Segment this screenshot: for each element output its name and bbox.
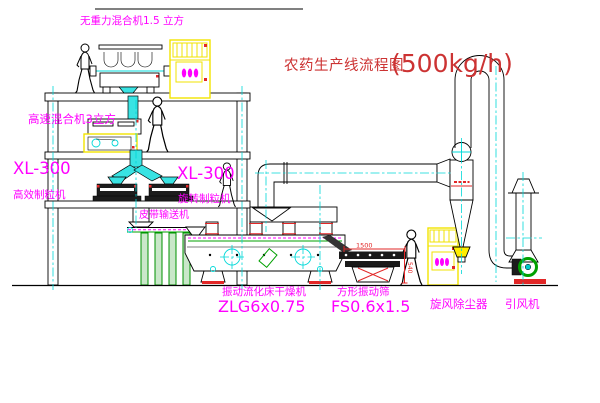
conveyor-support-legs (141, 233, 190, 285)
exhaust-stack (508, 179, 539, 262)
dryer-exhaust-duct (258, 159, 450, 207)
dryer-ports (205, 222, 333, 235)
title-capacity: (500kg/h) (391, 49, 513, 78)
label-granulator-left-name: 高效制粒机 (13, 188, 66, 201)
zero-gravity-mixer (90, 45, 170, 93)
label-sieve-model: FS0.6x1.5 (331, 297, 410, 316)
vibrating-sieve: 1500 540 (339, 242, 413, 284)
drawing-title: 农药生产线流程图 (500kg/h) (284, 49, 513, 78)
label-zero-gravity-mixer: 无重力混合机1.5 立方 (80, 14, 184, 27)
title-text: 农药生产线流程图 (284, 57, 404, 74)
label-fan: 引风机 (505, 297, 540, 311)
label-high-speed-mixer: 高速混合机3立方 (28, 112, 116, 126)
label-cyclone: 旋风除尘器 (430, 297, 488, 311)
dim-540: 540 (406, 262, 413, 274)
cad-drawing-canvas: 1500 540 (0, 0, 600, 403)
fluid-bed-dryer (185, 207, 352, 284)
control-cabinet-lower (428, 228, 458, 285)
label-belt-conveyor: 皮带输送机 (139, 208, 189, 221)
label-granulator-right-model: XL-300 (177, 164, 235, 183)
label-granulator-left-model: XL-300 (13, 159, 71, 178)
granulator-left (93, 177, 141, 201)
label-granulator-right-name: 旋转制粒机 (178, 192, 231, 205)
worker-figure-2 (147, 97, 168, 152)
control-cabinet-upper (170, 40, 210, 98)
dim-1500: 1500 (356, 242, 373, 250)
label-dryer-model: ZLG6x0.75 (218, 297, 306, 316)
